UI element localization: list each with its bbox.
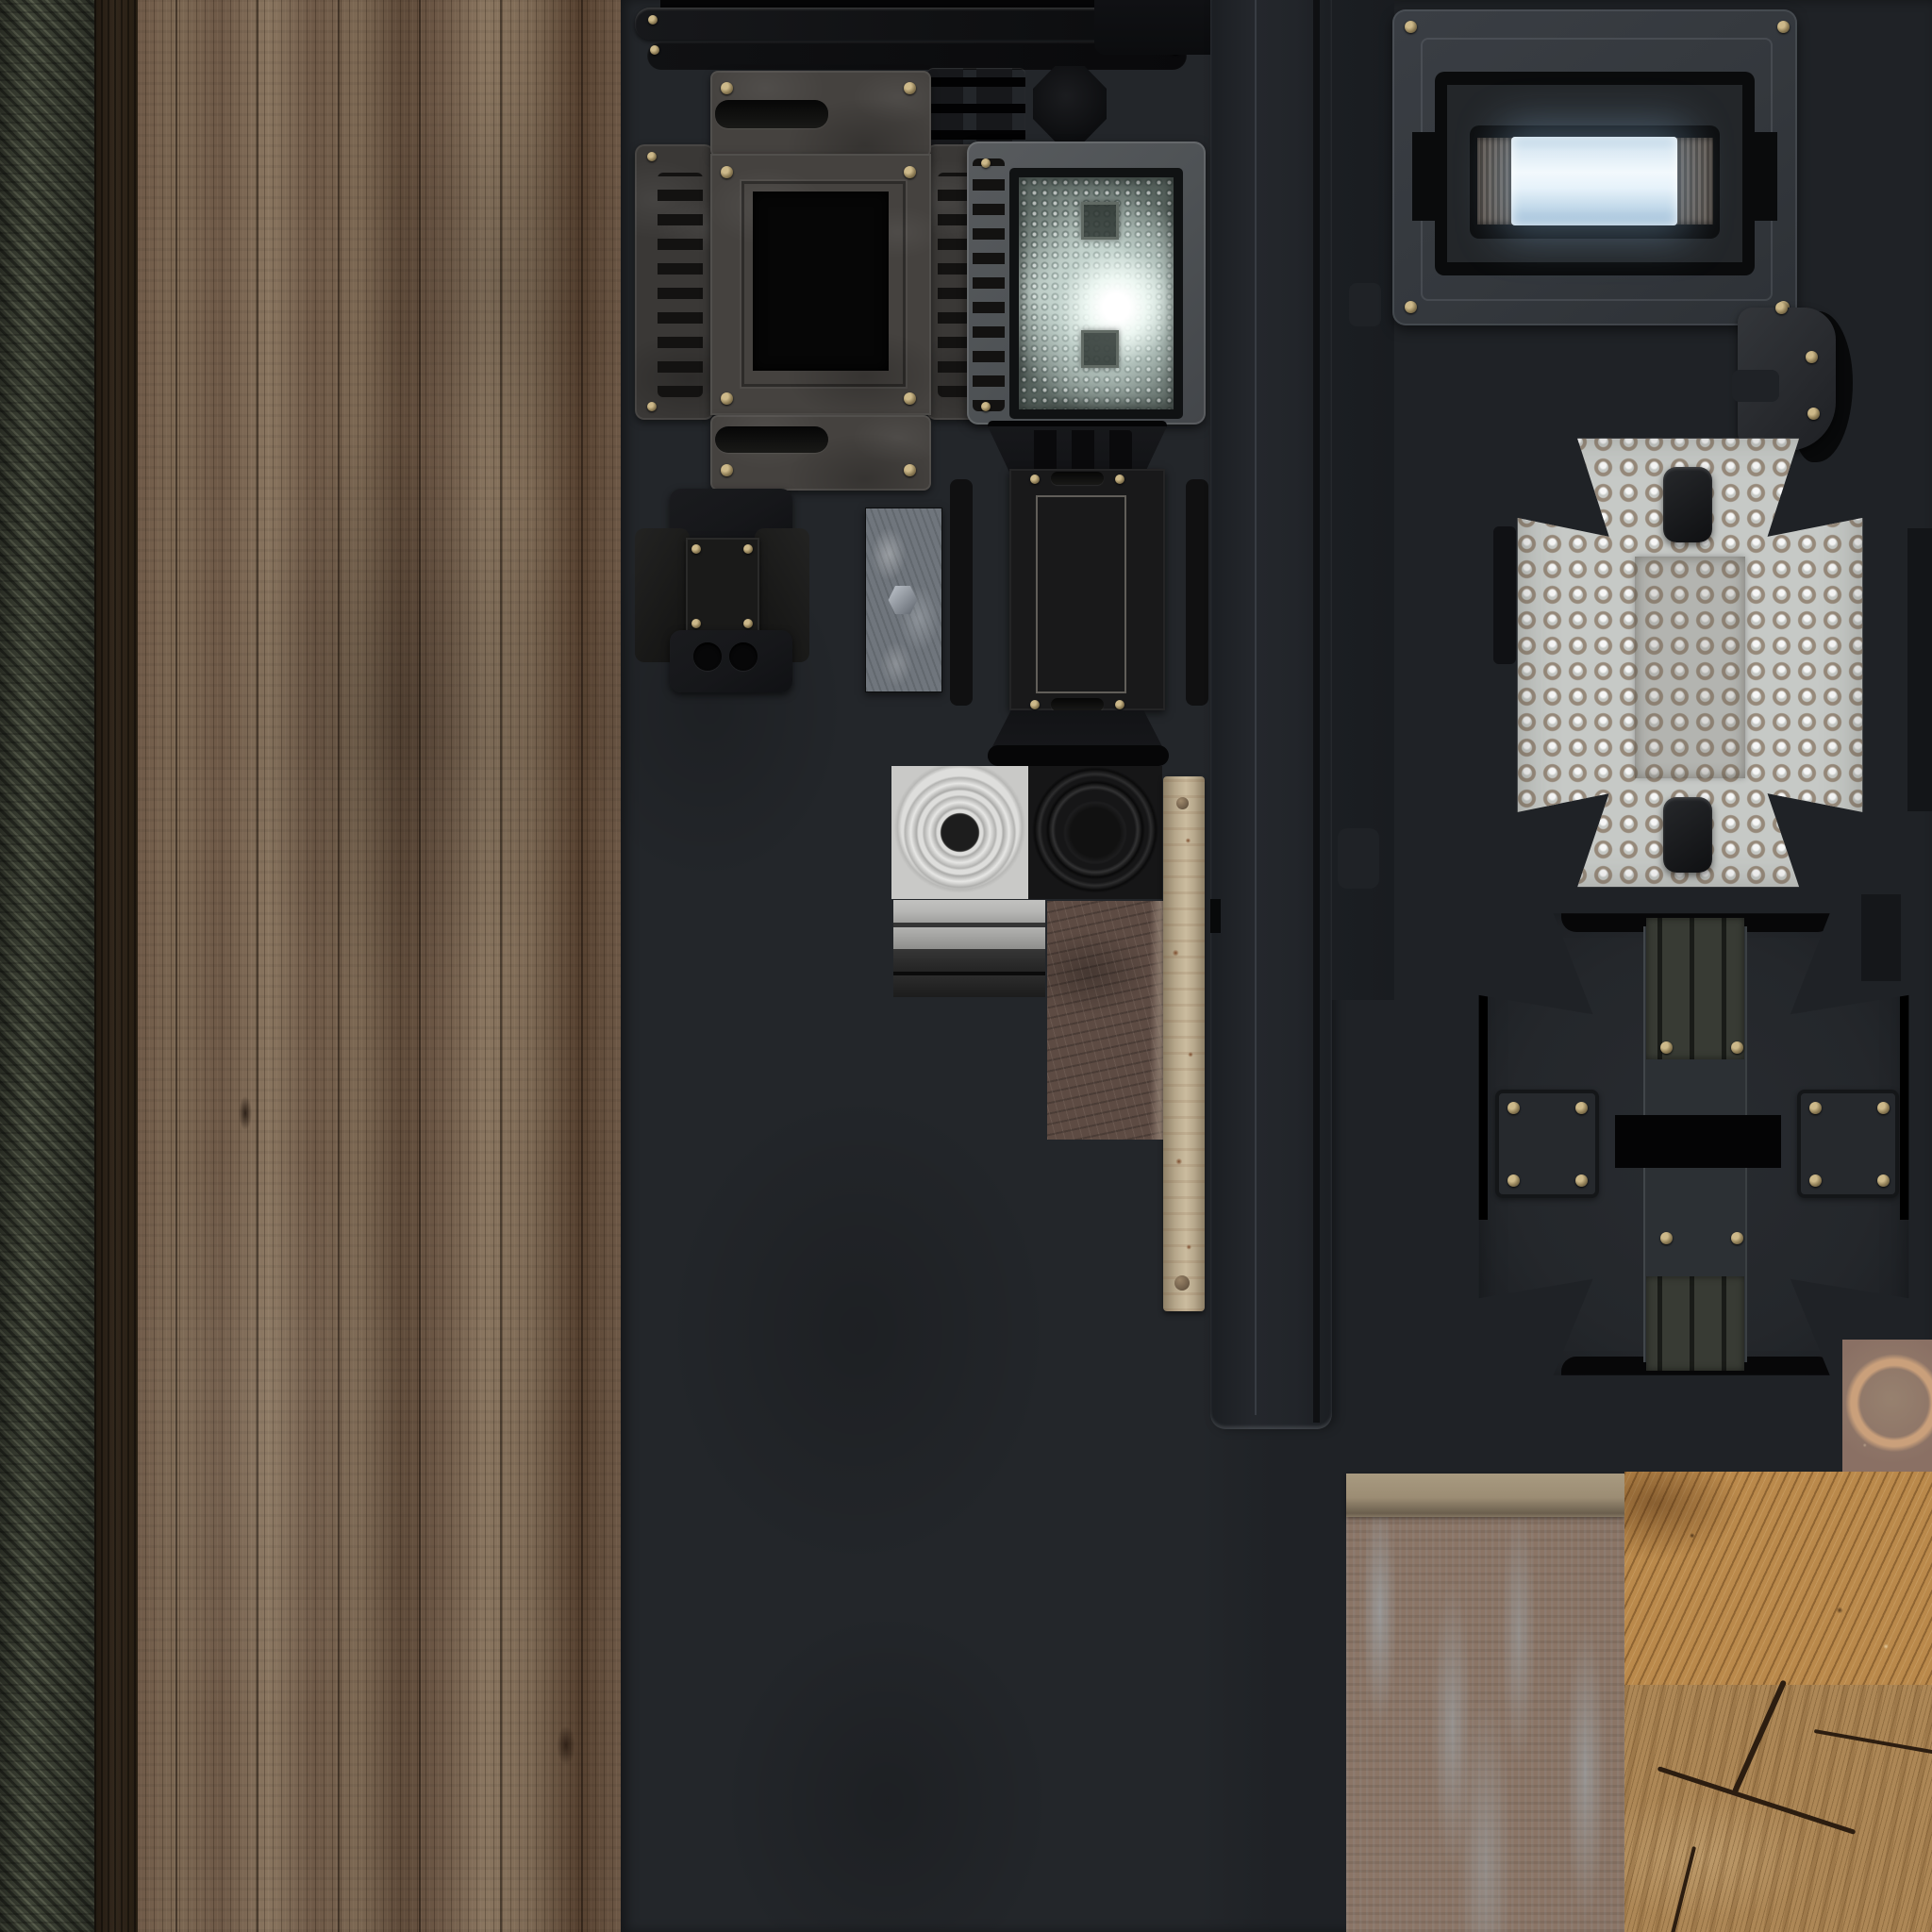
crack-line	[1657, 1766, 1857, 1835]
weathered-panel-lip	[1346, 1474, 1624, 1517]
bolt-plate-screw	[1507, 1102, 1520, 1114]
bark-edge	[94, 0, 138, 1932]
plate-screw	[904, 392, 916, 405]
trim-bar-gray	[893, 927, 1045, 949]
tube-cap-left	[1477, 138, 1515, 225]
glow-side-tab	[1751, 132, 1777, 221]
plate-screw	[721, 392, 733, 405]
white-speaker-tile	[891, 766, 1028, 899]
vent-screw	[647, 152, 657, 161]
wedge-screw	[1775, 302, 1788, 314]
shadow-slot	[1907, 528, 1932, 811]
spotlight-screw	[981, 402, 991, 411]
shadow-blob	[717, 1604, 1057, 1932]
plate-screw	[904, 166, 916, 178]
column-groove	[1313, 0, 1320, 1423]
spine-screw	[1731, 1232, 1743, 1244]
slotted-plate	[927, 68, 1025, 147]
wood-plank-sheet	[94, 0, 621, 1932]
bolt-plate-screw	[1809, 1102, 1822, 1114]
tube-cap-right	[1675, 138, 1713, 225]
spine-groove-top	[1646, 918, 1744, 1059]
wood-stick	[1163, 776, 1205, 1311]
crack-line	[1732, 1679, 1787, 1793]
trim-bar-black	[893, 975, 1045, 997]
glow-tube	[1511, 137, 1677, 225]
lamp-holder-top	[1081, 202, 1119, 240]
spine-screw	[1660, 1232, 1673, 1244]
panel-screw	[1777, 21, 1790, 33]
box-wing-left	[950, 479, 973, 706]
bolt-plate-screw	[1877, 1174, 1890, 1187]
top-right-block	[1094, 0, 1210, 55]
wedge-notch	[1732, 370, 1779, 402]
box-screw	[1030, 700, 1040, 709]
side-strip-notch	[1349, 283, 1381, 326]
spotlight-slot-strip	[973, 158, 1005, 411]
bolt-plate-screw	[1809, 1174, 1822, 1187]
spine-screw	[1731, 1041, 1743, 1054]
weathered-paint-panel	[1346, 1474, 1624, 1932]
leather-swatch	[1047, 901, 1163, 1140]
cross-center-rect	[1635, 557, 1745, 778]
crack-line	[1670, 1846, 1696, 1932]
bracket-screw	[691, 544, 701, 554]
cracked-end-grain	[1624, 1685, 1932, 1932]
rust-ring-square	[1842, 1340, 1932, 1472]
trim-bar-light	[893, 900, 1045, 923]
tab-screw	[904, 82, 916, 94]
bracket-hole	[729, 642, 758, 671]
box-wing-right	[1186, 479, 1208, 706]
shadow-slot	[1493, 526, 1516, 664]
stick-rivet	[1176, 797, 1189, 809]
vent-screw	[647, 402, 657, 411]
lamp-holder-bottom	[1081, 330, 1119, 368]
ribbed-fabric-strip	[0, 0, 94, 1932]
rail-screw	[650, 45, 659, 55]
box-screw	[1030, 475, 1040, 484]
trim-bar-dark	[893, 949, 1045, 972]
vent-slots-left	[658, 173, 703, 397]
shadow-blob	[660, 1085, 1057, 1575]
box-oval-slot	[1051, 472, 1104, 485]
cross-pad-bottom	[1663, 797, 1712, 873]
side-strip-notch	[1338, 828, 1379, 889]
rail-screw	[648, 15, 658, 25]
bolt-plate-screw	[1877, 1102, 1890, 1114]
tab-screw	[721, 464, 733, 476]
spine-screw	[1660, 1041, 1673, 1054]
tab-screw	[904, 464, 916, 476]
tab-screw	[721, 82, 733, 94]
screen-window	[753, 192, 889, 371]
tab-slot	[715, 100, 828, 128]
panel-screw	[1405, 301, 1417, 313]
box-oval-slot	[1051, 698, 1104, 711]
bracket-hole	[693, 642, 722, 671]
panel-screw	[1405, 21, 1417, 33]
bracket-screw	[691, 619, 701, 628]
column-notch	[1210, 899, 1221, 933]
box-screw	[1115, 700, 1124, 709]
spotlight-screw	[981, 158, 991, 168]
shadow-slot	[1861, 894, 1901, 981]
stick-rivet	[1174, 1275, 1190, 1291]
bracket-screw	[743, 619, 753, 628]
tab-slot	[715, 426, 828, 453]
bolt-plate-screw	[1575, 1102, 1588, 1114]
bracket-screw	[743, 544, 753, 554]
wedge-screw	[1807, 408, 1820, 420]
crack-line	[1814, 1729, 1932, 1757]
plate-screw	[721, 166, 733, 178]
box-chalk-outline	[1036, 495, 1126, 693]
texture-atlas	[0, 0, 1932, 1932]
black-speaker-tile	[1028, 766, 1162, 899]
spine-groove-bottom	[1646, 1276, 1744, 1371]
cross-pad-top	[1663, 467, 1712, 542]
box-screw	[1115, 475, 1124, 484]
bolt-plate-screw	[1575, 1174, 1588, 1187]
column-seam	[1255, 0, 1257, 1415]
box-top-flap-slots	[1028, 430, 1132, 472]
rough-sawn-wood	[1624, 1472, 1932, 1685]
speaker-top-bar	[988, 745, 1169, 766]
cross-center-bar	[1615, 1115, 1781, 1168]
bolt-plate-screw	[1507, 1174, 1520, 1187]
wedge-screw	[1806, 351, 1818, 363]
